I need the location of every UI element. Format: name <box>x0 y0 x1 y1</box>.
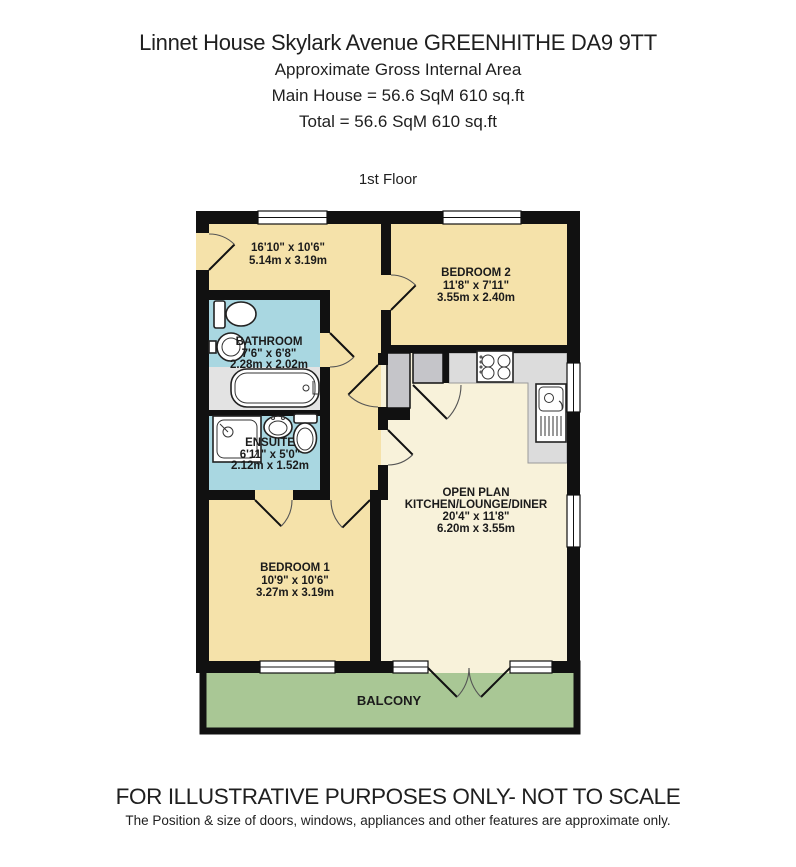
window <box>567 363 580 412</box>
basin-icon <box>264 416 292 438</box>
open-plan-name-1: OPEN PLAN <box>442 487 509 499</box>
landing-dims-imperial: 16'10" x 10'6" <box>251 242 325 254</box>
bedroom1-dims-metric: 3.27m x 3.19m <box>256 587 334 599</box>
open-plan-dims-metric: 6.20m x 3.55m <box>437 523 515 535</box>
window <box>260 661 335 673</box>
floor-plan: 16'10" x 10'6" 5.14m x 3.19m BEDROOM 2 1… <box>0 0 796 867</box>
window <box>393 661 428 673</box>
window <box>443 211 521 224</box>
open-plan-dims-imperial: 20'4" x 11'8" <box>443 511 510 523</box>
window <box>510 661 552 673</box>
disclaimer-text: FOR ILLUSTRATIVE PURPOSES ONLY- NOT TO S… <box>0 785 796 810</box>
toilet-icon <box>294 414 318 453</box>
disclaimer-note: The Position & size of doors, windows, a… <box>0 814 796 829</box>
bedroom2-dims-metric: 3.55m x 2.40m <box>437 292 515 304</box>
window <box>567 495 580 547</box>
window <box>258 211 327 224</box>
bedroom2-name: BEDROOM 2 <box>441 267 511 279</box>
ensuite-dims-metric: 2.12m x 1.52m <box>231 460 309 472</box>
kitchen-sink-icon <box>536 384 566 442</box>
landing-dims-metric: 5.14m x 3.19m <box>249 255 327 267</box>
bathtub-icon <box>231 369 319 407</box>
cupboard-2 <box>413 353 443 383</box>
bedroom1-name: BEDROOM 1 <box>260 562 330 574</box>
open-plan-name-2: KITCHEN/LOUNGE/DINER <box>405 499 548 511</box>
floorplan-page: Linnet House Skylark Avenue GREENHITHE D… <box>0 0 796 867</box>
balcony-name: BALCONY <box>357 693 422 708</box>
entry-door-opening <box>196 233 209 270</box>
footer: FOR ILLUSTRATIVE PURPOSES ONLY- NOT TO S… <box>0 785 796 829</box>
bathroom-name: BATHROOM <box>236 336 303 348</box>
toilet-icon <box>214 301 256 328</box>
bedroom2-dims-imperial: 11'8" x 7'11" <box>443 280 509 292</box>
cupboard-1 <box>387 353 410 408</box>
ensuite-name: ENSUITE <box>245 437 295 449</box>
bathroom-dims-metric: 2.28m x 2.02m <box>230 359 308 371</box>
bedroom1-dims-imperial: 10'9" x 10'6" <box>261 575 329 587</box>
hob-icon <box>477 351 513 382</box>
